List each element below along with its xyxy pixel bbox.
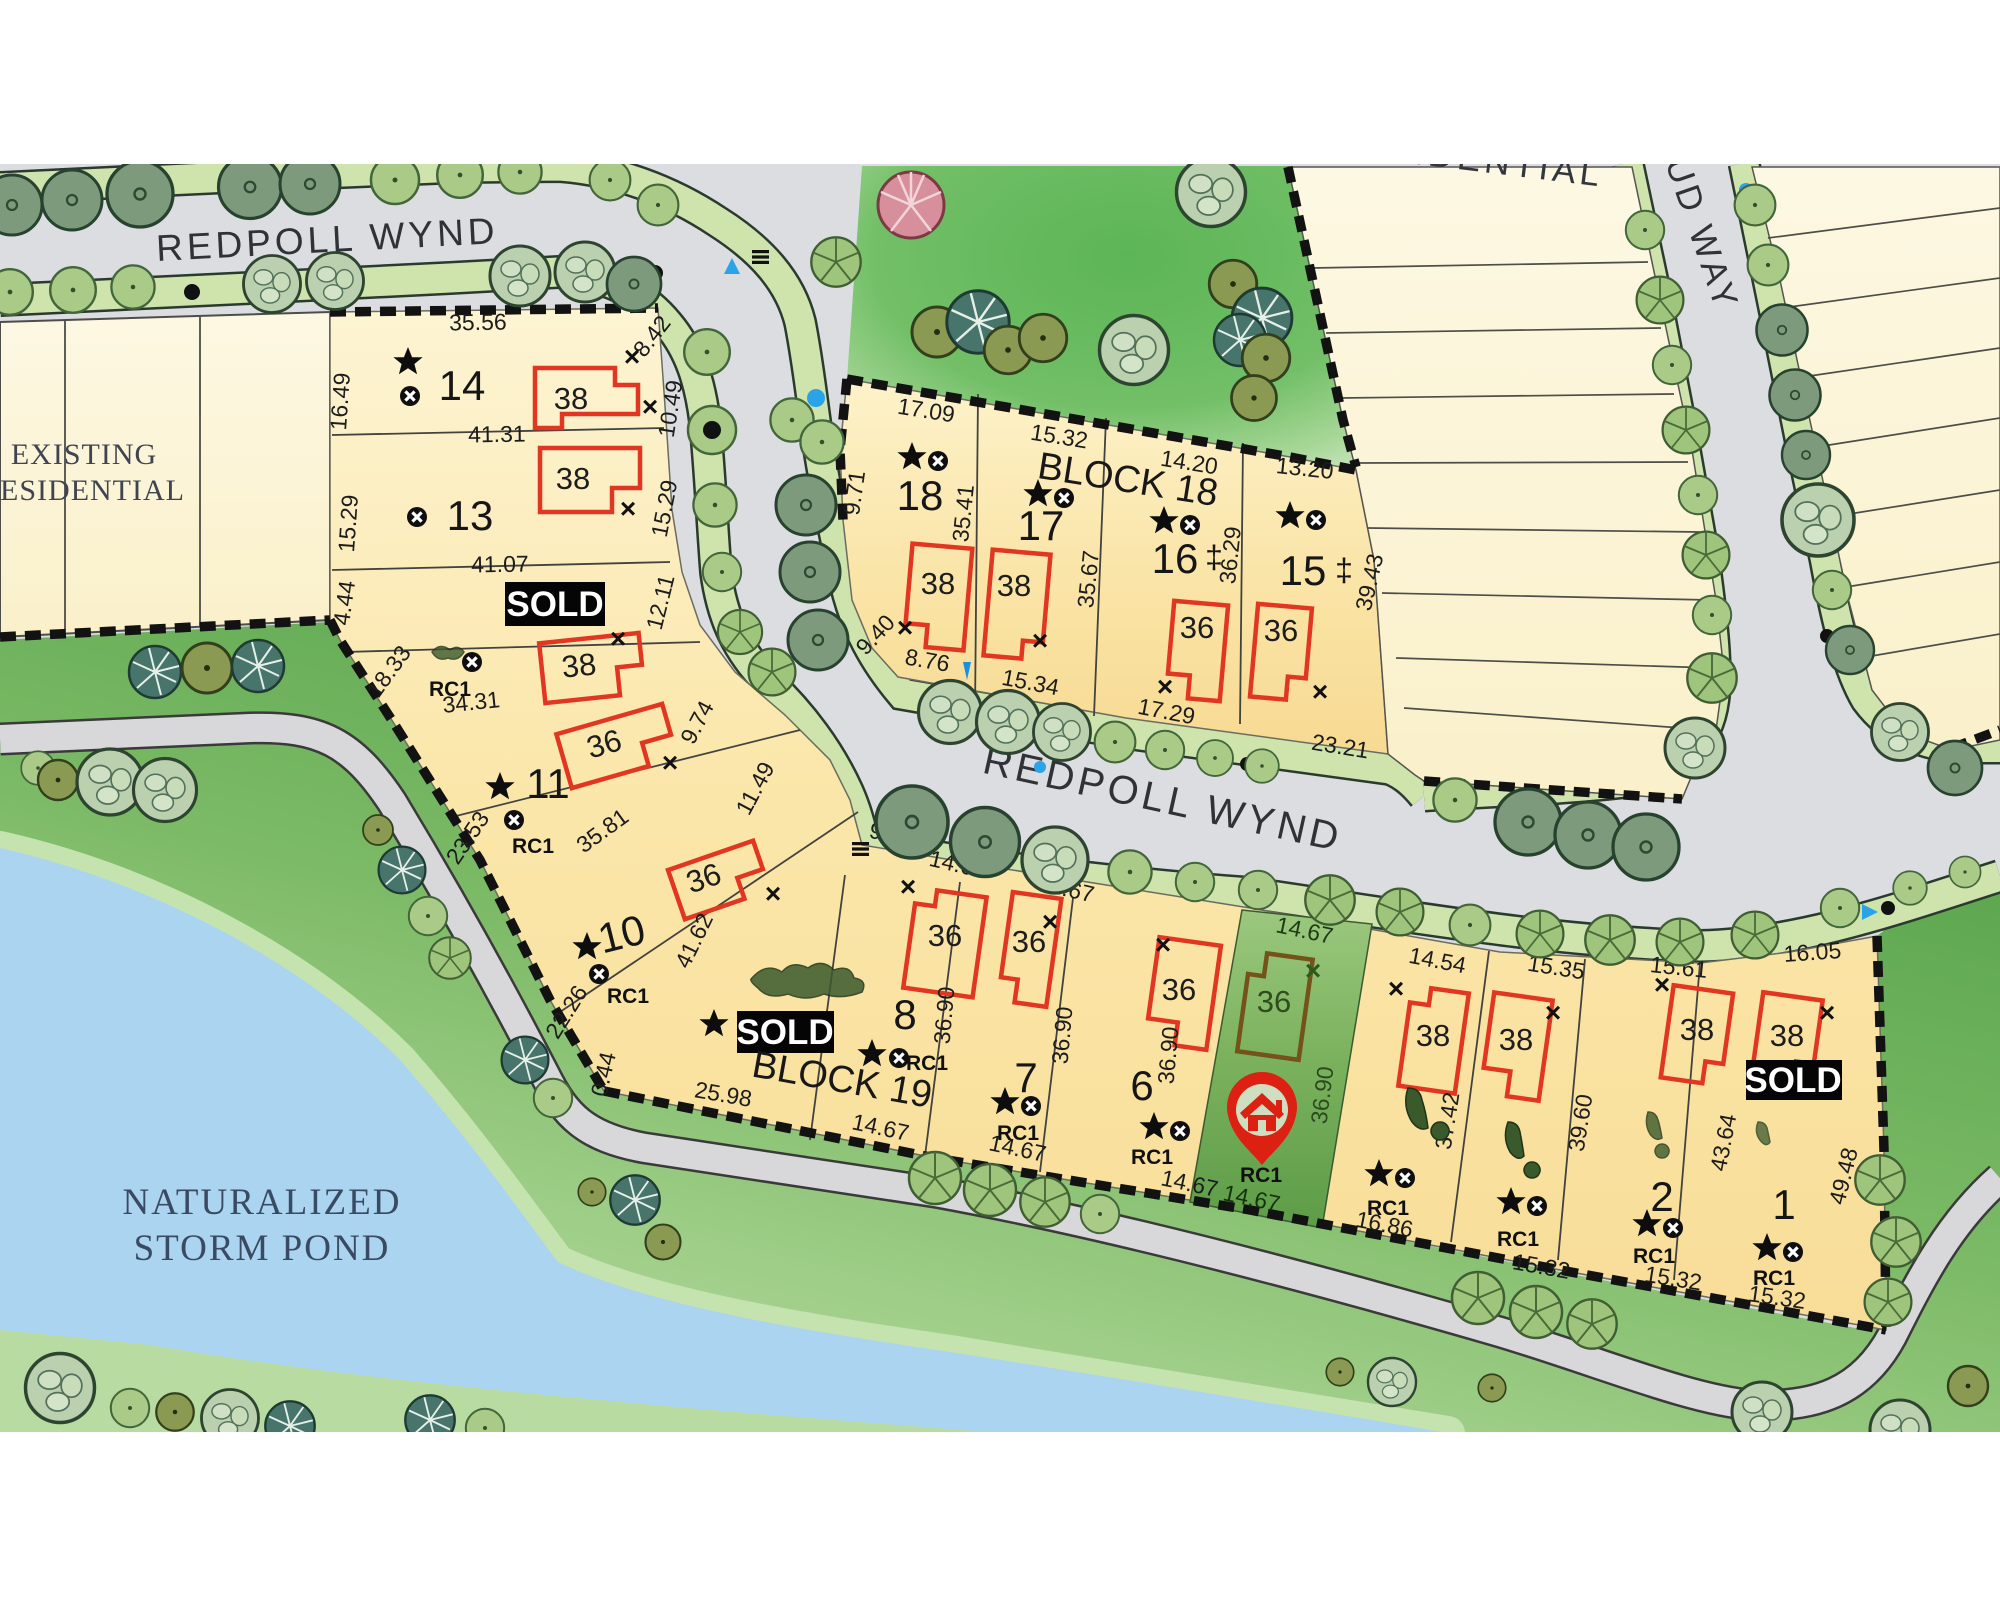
svg-text:16.49: 16.49: [325, 372, 355, 431]
svg-text:×: ×: [897, 612, 913, 643]
svg-text:11: 11: [526, 760, 570, 807]
svg-text:1: 1: [1772, 1181, 1795, 1228]
svg-text:38: 38: [921, 566, 955, 601]
svg-text:38: 38: [1680, 1012, 1714, 1047]
svg-text:7: 7: [1014, 1054, 1037, 1101]
svg-text:RC1: RC1: [1497, 1228, 1539, 1251]
svg-text:15.29: 15.29: [333, 494, 363, 553]
svg-text:36: 36: [1162, 972, 1196, 1007]
svg-text:×: ×: [1155, 929, 1171, 960]
svg-text:38: 38: [1499, 1022, 1533, 1057]
svg-text:×: ×: [624, 341, 640, 372]
svg-text:17: 17: [1018, 502, 1065, 549]
svg-text:RC1: RC1: [1131, 1146, 1173, 1169]
svg-text:38: 38: [1770, 1018, 1804, 1053]
svg-text:×: ×: [765, 878, 781, 909]
svg-text:×: ×: [1819, 997, 1835, 1028]
svg-text:×: ×: [1042, 906, 1058, 937]
svg-text:EXISTING: EXISTING: [11, 438, 157, 471]
svg-text:‡: ‡: [1335, 552, 1353, 588]
svg-text:36: 36: [1180, 610, 1214, 645]
svg-text:SOLD: SOLD: [736, 1013, 833, 1052]
svg-text:13: 13: [447, 492, 494, 539]
svg-text:8: 8: [893, 991, 916, 1038]
svg-text:36: 36: [1257, 984, 1291, 1019]
svg-text:36.90: 36.90: [1153, 1025, 1184, 1085]
svg-text:×: ×: [900, 871, 916, 902]
svg-text:16.05: 16.05: [1783, 937, 1842, 967]
svg-text:RC1: RC1: [1633, 1245, 1675, 1268]
svg-text:×: ×: [662, 747, 678, 778]
svg-text:RC1: RC1: [512, 835, 554, 858]
svg-text:36: 36: [928, 918, 962, 953]
svg-text:38: 38: [1416, 1018, 1450, 1053]
svg-text:RC1: RC1: [607, 985, 649, 1008]
svg-text:×: ×: [610, 623, 626, 654]
svg-text:41.31: 41.31: [468, 421, 526, 448]
svg-text:38: 38: [554, 381, 588, 416]
svg-text:×: ×: [620, 493, 636, 524]
svg-text:41.07: 41.07: [471, 551, 529, 578]
svg-text:RC1: RC1: [1240, 1164, 1282, 1187]
svg-text:38: 38: [997, 568, 1031, 603]
svg-text:RC1: RC1: [906, 1052, 948, 1075]
svg-text:36.90: 36.90: [1047, 1005, 1078, 1065]
svg-text:×: ×: [1388, 973, 1404, 1004]
svg-text:SOLD: SOLD: [1744, 1061, 1841, 1100]
svg-text:6: 6: [1130, 1062, 1153, 1109]
svg-text:38: 38: [560, 646, 598, 684]
svg-text:14: 14: [439, 362, 486, 409]
svg-text:RESIDENTIAL: RESIDENTIAL: [0, 474, 185, 507]
svg-text:NATURALIZED: NATURALIZED: [123, 1182, 402, 1223]
svg-text:2: 2: [1650, 1173, 1673, 1220]
svg-text:×: ×: [1157, 671, 1173, 702]
svg-text:RC1: RC1: [997, 1122, 1039, 1145]
svg-text:×: ×: [642, 391, 658, 422]
svg-text:38: 38: [556, 461, 590, 496]
svg-text:16: 16: [1152, 535, 1199, 582]
svg-text:36.90: 36.90: [929, 985, 960, 1045]
svg-text:RC1: RC1: [1367, 1197, 1409, 1220]
svg-text:36: 36: [1264, 613, 1298, 648]
svg-text:35.56: 35.56: [449, 309, 507, 336]
svg-text:RC1: RC1: [429, 678, 471, 701]
svg-text:×: ×: [1305, 955, 1321, 986]
svg-text:×: ×: [1032, 625, 1048, 656]
svg-text:×: ×: [1545, 997, 1561, 1028]
svg-text:STORM POND: STORM POND: [134, 1228, 391, 1269]
svg-text:RC1: RC1: [1753, 1267, 1795, 1290]
svg-text:SOLD: SOLD: [506, 585, 603, 624]
svg-text:18: 18: [897, 472, 944, 519]
svg-text:15: 15: [1280, 547, 1327, 594]
svg-text:×: ×: [1312, 676, 1328, 707]
svg-text:×: ×: [1654, 969, 1670, 1000]
